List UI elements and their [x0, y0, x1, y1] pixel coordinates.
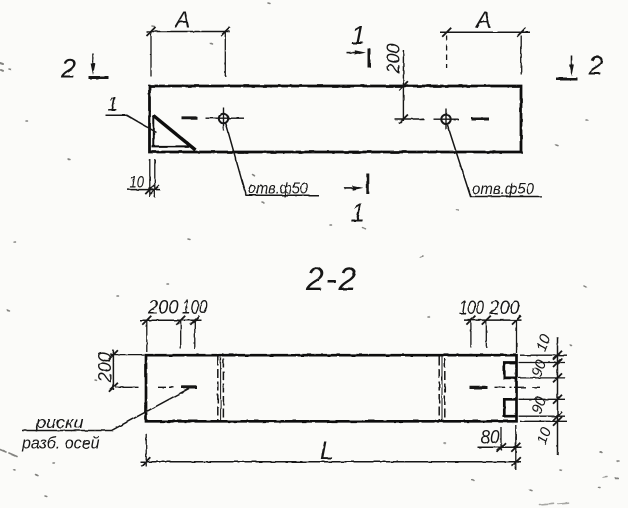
svg-text:отв.ф50: отв.ф50 [248, 181, 308, 198]
svg-text:80: 80 [481, 428, 500, 449]
svg-text:2-2: 2-2 [305, 261, 358, 297]
svg-text:L: L [320, 437, 334, 465]
svg-text:2: 2 [587, 51, 603, 81]
svg-text:200: 200 [489, 298, 520, 319]
svg-text:риски: риски [35, 413, 84, 432]
svg-text:1: 1 [351, 198, 365, 228]
svg-text:200: 200 [147, 298, 179, 319]
svg-text:10: 10 [130, 173, 145, 192]
svg-text:200: 200 [384, 43, 404, 74]
svg-text:1: 1 [108, 95, 119, 116]
svg-text:разб. осей: разб. осей [21, 434, 100, 453]
svg-text:200: 200 [95, 352, 115, 383]
svg-text:2: 2 [60, 54, 76, 84]
svg-text:отв.ф50: отв.ф50 [472, 181, 534, 198]
svg-text:100: 100 [182, 298, 208, 319]
svg-text:1: 1 [351, 20, 365, 50]
svg-text:100: 100 [459, 298, 484, 319]
svg-text:A: A [173, 7, 190, 33]
svg-text:A: A [474, 7, 491, 33]
